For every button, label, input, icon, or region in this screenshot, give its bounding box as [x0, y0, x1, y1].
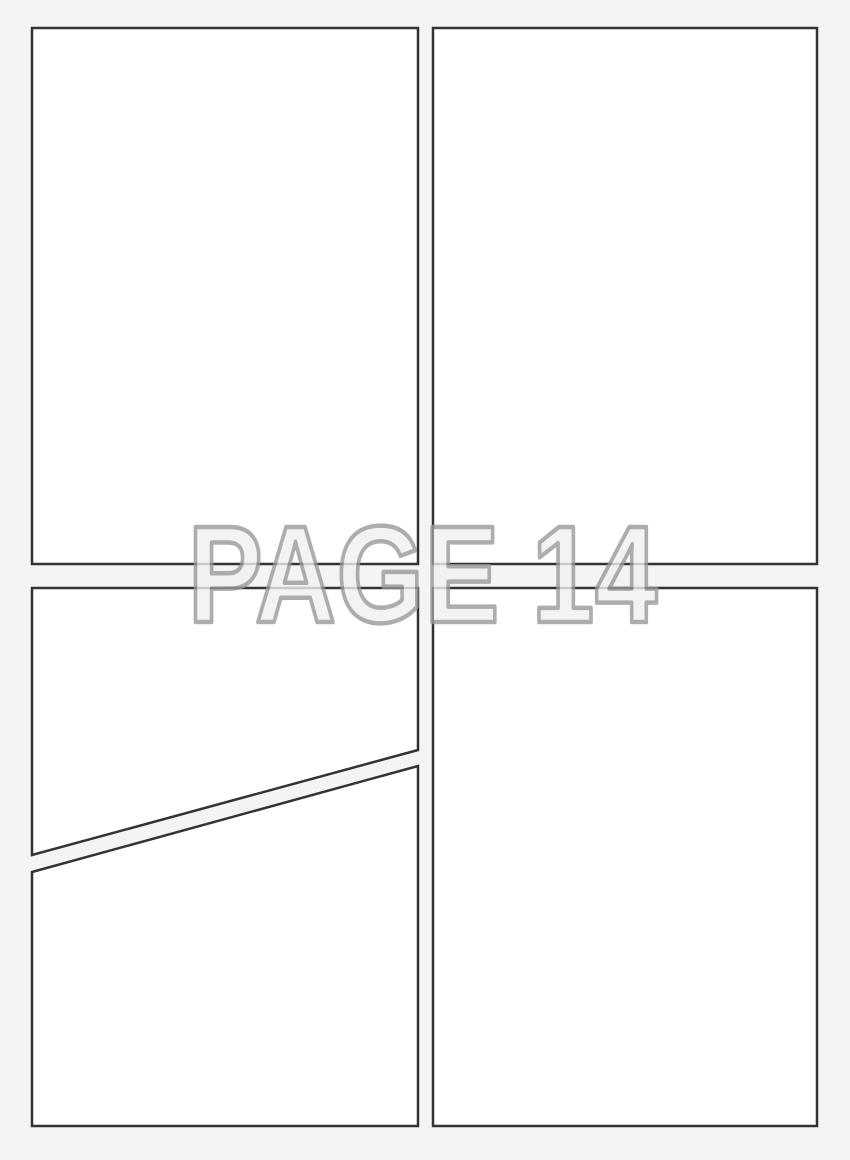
page-number-watermark: PAGE 14 — [188, 498, 658, 652]
panel-top-left — [32, 28, 418, 564]
comic-page-template: PAGE 14 — [0, 0, 850, 1160]
panel-top-right — [433, 28, 817, 564]
comic-page-canvas: PAGE 14 — [0, 0, 850, 1160]
panel-bottom-right — [433, 588, 817, 1126]
